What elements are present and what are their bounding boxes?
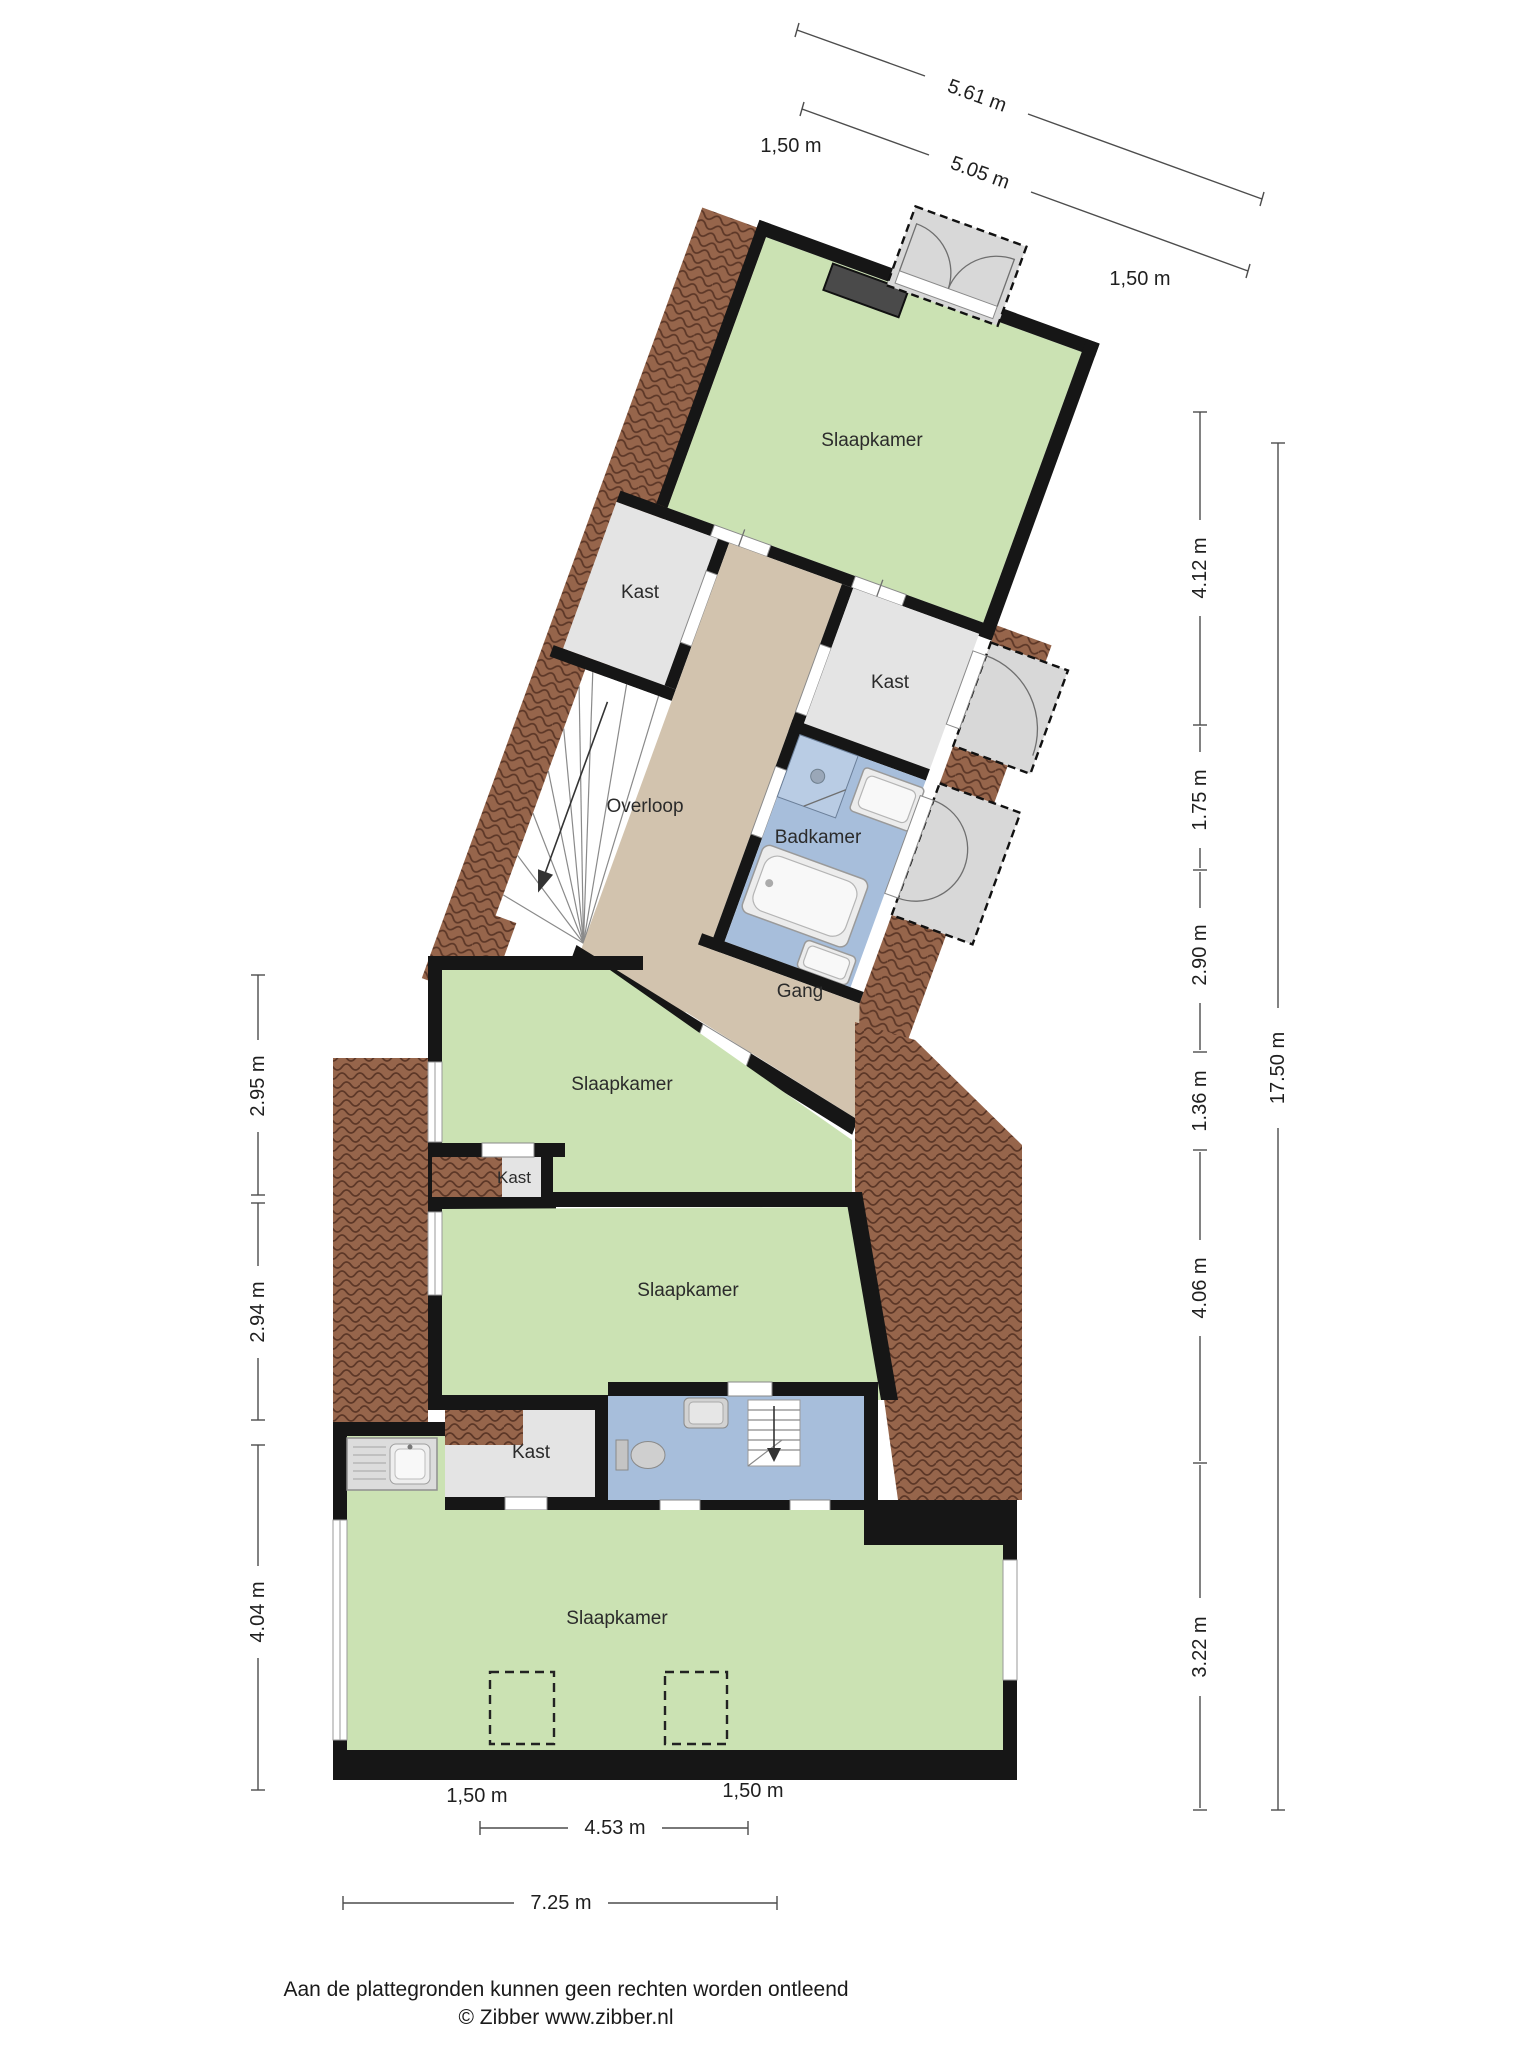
dim-right-6: 3.22 m	[1189, 1616, 1211, 1677]
toilet-bowl	[631, 1442, 665, 1469]
footer-copyright: © Zibber www.zibber.nl	[458, 2006, 673, 2029]
dim-bottom-right-knee: 1,50 m	[722, 1780, 783, 1802]
wall	[553, 1192, 860, 1207]
dim-top-inner: 5.05 m	[948, 152, 1013, 194]
floorplan-svg: Slaapkamer Kast Kast Overloop Badkamer G…	[0, 0, 1536, 2048]
dim-right-2: 1.75 m	[1189, 769, 1211, 830]
tap	[408, 1445, 413, 1450]
label-closet-middle: Kast	[497, 1168, 531, 1187]
lower-wing	[333, 956, 1022, 1780]
footer: Aan de plattegronden kunnen geen rechten…	[283, 1978, 848, 2029]
dim-top-right-knee: 1,50 m	[1109, 268, 1170, 290]
label-bedroom-large: Slaapkamer	[637, 1280, 739, 1301]
wall	[864, 1382, 878, 1502]
label-hallway: Gang	[777, 981, 823, 1002]
dim-bottom-outer: 7.25 m	[343, 1892, 777, 1914]
dim-right-3: 2.90 m	[1189, 924, 1211, 985]
wall	[333, 1422, 445, 1436]
dim-left-2: 2.94 m	[247, 1281, 269, 1342]
label-landing: Overloop	[606, 796, 683, 817]
counter-sink-basin	[395, 1449, 425, 1479]
dim-left-1: 2.95 m	[247, 1055, 269, 1116]
dim-top-outer: 5.61 m	[945, 75, 1010, 117]
wall	[595, 1410, 608, 1500]
dim-bottom-left-knee: 1,50 m	[446, 1785, 507, 1807]
dim-bottom-inner: 4.53 m	[480, 1817, 748, 1839]
dim-right-chain: 4.12 m 1.75 m 2.90 m 1.36 m 4.06 m 3.22 …	[1189, 412, 1211, 1810]
room-bedroom-large	[442, 1207, 888, 1400]
label-bathroom: Badkamer	[775, 827, 862, 848]
roof-over-closet-bottom	[445, 1410, 523, 1445]
dim-right-total-label: 17.50 m	[1267, 1032, 1289, 1104]
window-bottom-bedroom-right	[1003, 1560, 1017, 1680]
label-bedroom-bottom: Slaapkamer	[566, 1608, 668, 1629]
wall	[428, 1395, 608, 1410]
dim-top-left-knee: 1,50 m	[760, 135, 821, 157]
toilet-tank	[616, 1440, 628, 1470]
label-bedroom-middle: Slaapkamer	[571, 1074, 673, 1095]
wall	[333, 1750, 1017, 1780]
roof-over-closet-middle	[432, 1157, 502, 1197]
wall	[864, 1500, 1017, 1545]
door-wc-top	[728, 1382, 772, 1396]
dim-bottom-outer-label: 7.25 m	[530, 1892, 591, 1914]
door-closet-bottom	[505, 1497, 547, 1510]
wall	[428, 956, 643, 970]
dim-right-5: 4.06 m	[1189, 1257, 1211, 1318]
label-closet-upper-left: Kast	[621, 582, 660, 603]
label-closet-upper-right: Kast	[871, 672, 910, 693]
dim-right-total: 17.50 m	[1267, 443, 1289, 1810]
wc-sink-basin	[689, 1402, 723, 1424]
dim-left-chain: 2.95 m 2.94 m 4.04 m	[247, 975, 269, 1790]
dim-right-4: 1.36 m	[1189, 1070, 1211, 1131]
label-bedroom-top: Slaapkamer	[821, 430, 923, 451]
label-closet-bottom: Kast	[512, 1442, 551, 1463]
dim-bottom-inner-label: 4.53 m	[584, 1817, 645, 1839]
roof-strip-lower-right	[855, 1022, 1022, 1500]
door-closet-middle	[482, 1143, 534, 1157]
dim-left-3: 4.04 m	[247, 1581, 269, 1642]
floorplan-page: Slaapkamer Kast Kast Overloop Badkamer G…	[0, 0, 1536, 2048]
footer-disclaimer: Aan de plattegronden kunnen geen rechten…	[283, 1978, 848, 2001]
wall	[428, 1197, 556, 1209]
dim-right-1: 4.12 m	[1189, 537, 1211, 598]
